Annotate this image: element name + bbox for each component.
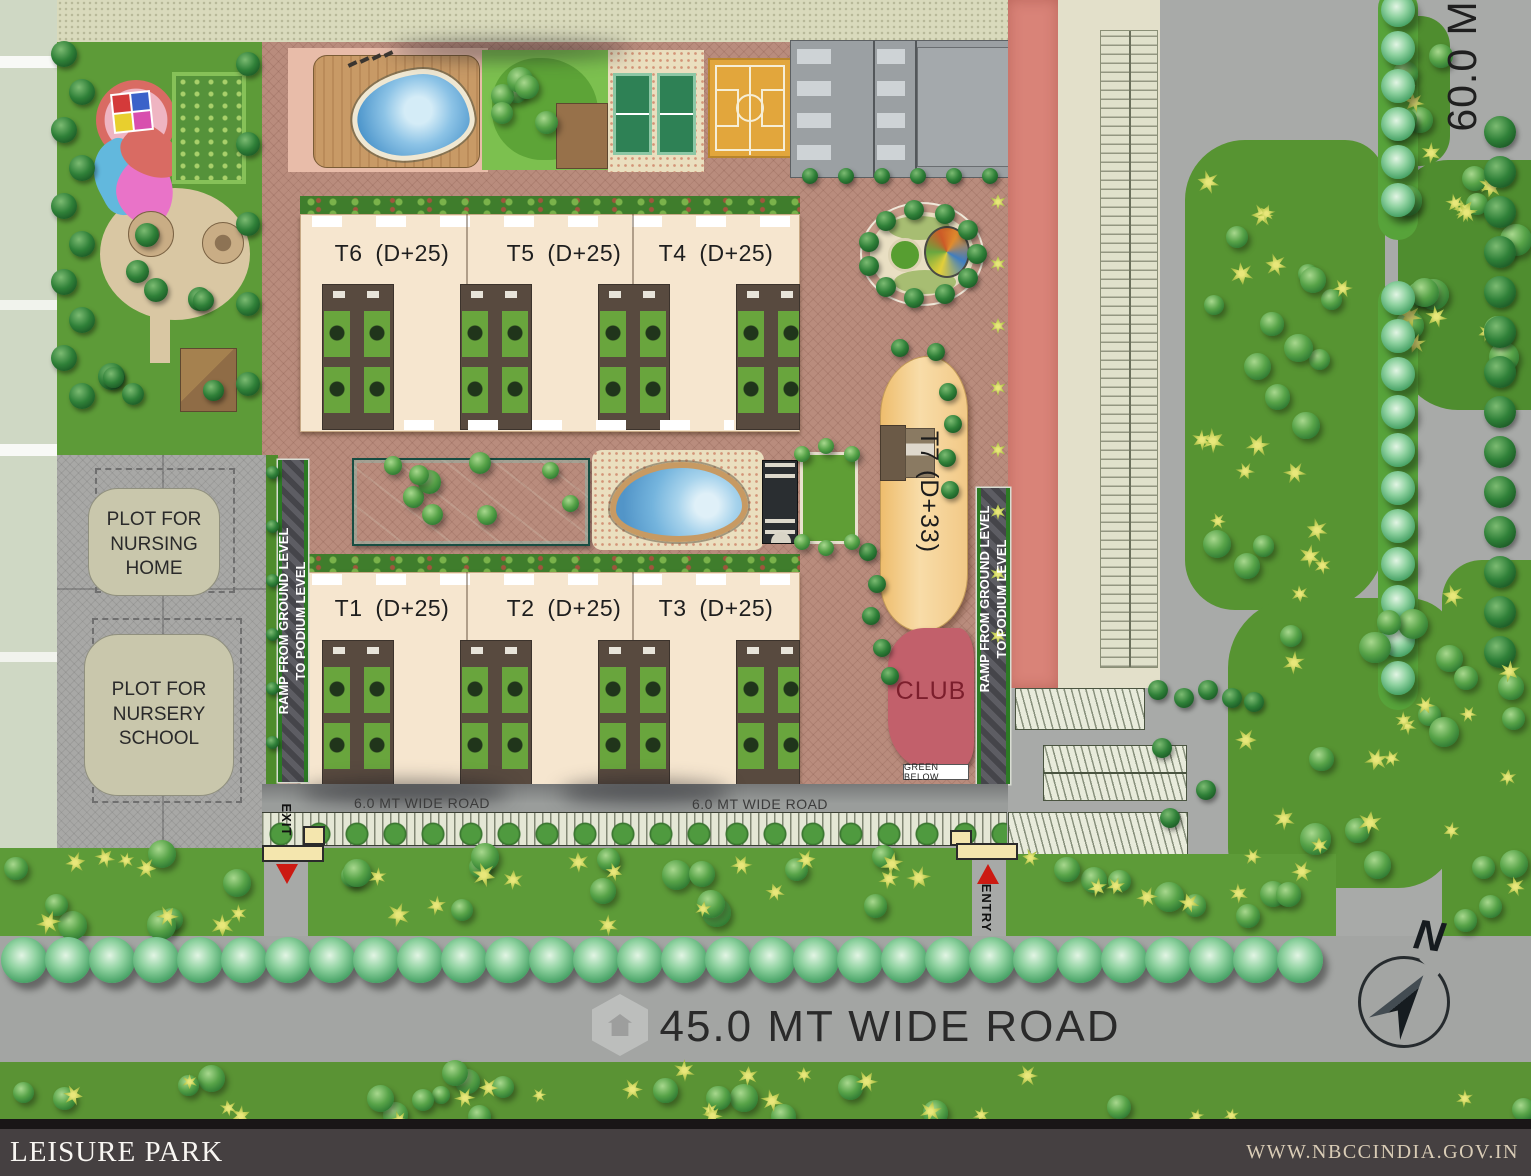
tree-icon bbox=[1381, 509, 1415, 543]
tree-icon bbox=[1145, 937, 1191, 983]
tree-icon bbox=[1381, 319, 1415, 353]
club-label: CLUB bbox=[888, 676, 974, 706]
tree-icon bbox=[1148, 680, 1168, 700]
tree-icon bbox=[1054, 857, 1080, 883]
tree-icon bbox=[367, 1085, 394, 1112]
tree-icon bbox=[859, 543, 877, 561]
path-line bbox=[0, 444, 57, 456]
tree-icon bbox=[1381, 661, 1415, 695]
tree-icon bbox=[1484, 156, 1516, 188]
tree-icon bbox=[653, 1078, 678, 1103]
project-title: LEISURE PARK bbox=[10, 1129, 223, 1176]
tree-icon bbox=[1381, 69, 1415, 103]
tennis-court bbox=[657, 73, 696, 155]
tree-icon bbox=[1364, 851, 1392, 879]
tree-icon bbox=[451, 899, 473, 921]
tree-icon bbox=[1309, 747, 1334, 772]
court-center-circle bbox=[736, 94, 764, 122]
tree-icon bbox=[69, 307, 95, 333]
utility-building bbox=[556, 103, 608, 169]
tree-icon bbox=[874, 168, 890, 184]
tree-icon bbox=[1359, 632, 1391, 664]
tree-icon bbox=[1484, 316, 1516, 348]
tree-icon bbox=[45, 937, 91, 983]
inner-road-label-east: 6.0 MT WIDE ROAD bbox=[690, 796, 830, 812]
entry-label: ENTRY bbox=[979, 882, 995, 934]
tree-icon bbox=[69, 79, 95, 105]
garden-plot bbox=[172, 72, 246, 184]
green-square-court bbox=[800, 452, 858, 544]
tree-icon bbox=[562, 495, 579, 512]
tower-courtyard bbox=[322, 284, 394, 430]
site-plan-canvas: T6 (D+25) T5 (D+25) T4 (D+25) T1 (D+25) … bbox=[0, 0, 1531, 1176]
tree-icon bbox=[1381, 31, 1415, 65]
tree-icon bbox=[1484, 196, 1516, 228]
main-road-label: 45.0 MT WIDE ROAD bbox=[620, 1002, 1160, 1052]
tree-icon bbox=[1429, 717, 1459, 747]
tree-icon bbox=[485, 937, 531, 983]
tree-icon bbox=[1300, 267, 1326, 293]
exit-gate-bar bbox=[262, 845, 324, 862]
ramp-east-label: RAMP FROM GROUND LEVEL TO PODIUM LEVEL bbox=[975, 439, 1013, 759]
tree-icon bbox=[617, 937, 663, 983]
tree-icon bbox=[868, 575, 886, 593]
balcony-notches bbox=[312, 216, 790, 227]
balcony-notches bbox=[312, 574, 790, 585]
tree-icon bbox=[1484, 596, 1516, 628]
tree-icon bbox=[1512, 1098, 1531, 1122]
tree-icon bbox=[69, 383, 95, 409]
ludo-square bbox=[114, 113, 133, 132]
tree-icon bbox=[409, 465, 429, 485]
tree-icon bbox=[221, 937, 267, 983]
tree-icon bbox=[1381, 357, 1415, 391]
tree-icon bbox=[1226, 226, 1248, 248]
ludo-square bbox=[133, 111, 152, 130]
path-line bbox=[0, 300, 57, 310]
tree-icon bbox=[1484, 276, 1516, 308]
tree-icon bbox=[935, 284, 955, 304]
tower-label-t4: T4 (D+25) bbox=[636, 240, 796, 267]
tree-icon bbox=[946, 168, 962, 184]
tree-icon bbox=[749, 937, 795, 983]
tower-label-t5: T5 (D+25) bbox=[484, 240, 644, 267]
tree-icon bbox=[1203, 530, 1231, 558]
tree-icon bbox=[1300, 823, 1332, 855]
tree-icon bbox=[1265, 384, 1291, 410]
tree-icon bbox=[1484, 436, 1516, 468]
tree-icon bbox=[982, 168, 998, 184]
tree-icon bbox=[126, 260, 149, 283]
tree-icon bbox=[198, 1065, 225, 1092]
tree-icon bbox=[442, 1060, 468, 1086]
tree-icon bbox=[69, 155, 95, 181]
tree-icon bbox=[223, 869, 251, 897]
entry-gate-bar bbox=[956, 843, 1018, 860]
southeast-green-area bbox=[1228, 598, 1458, 888]
tree-icon bbox=[1160, 808, 1180, 828]
tree-icon bbox=[1498, 674, 1523, 699]
court-key-right bbox=[761, 89, 785, 127]
tree-icon bbox=[1484, 516, 1516, 548]
tree-icon bbox=[876, 211, 896, 231]
tree-icon bbox=[793, 937, 839, 983]
ludo-court bbox=[110, 90, 154, 134]
east-road-label: 60.0 M bbox=[1438, 0, 1486, 196]
inner-road-label-west: 6.0 MT WIDE ROAD bbox=[352, 795, 492, 811]
tree-icon bbox=[1244, 692, 1264, 712]
compass bbox=[1358, 956, 1450, 1048]
path-line bbox=[0, 56, 57, 68]
tower-courtyard bbox=[322, 640, 394, 788]
tree-icon bbox=[1484, 236, 1516, 268]
website-url: WWW.NBCCINDIA.GOV.IN bbox=[1246, 1129, 1519, 1176]
pavilion bbox=[762, 460, 798, 544]
tree-icon bbox=[958, 268, 978, 288]
tree-icon bbox=[1484, 116, 1516, 148]
tree-icon bbox=[730, 1084, 758, 1112]
pavilion-stripes bbox=[765, 463, 795, 485]
tree-icon bbox=[45, 894, 68, 917]
tree-icon bbox=[969, 937, 1015, 983]
tree-icon bbox=[343, 859, 371, 887]
tree-icon bbox=[177, 937, 223, 983]
tree-icon bbox=[1260, 312, 1283, 335]
basketball-court bbox=[708, 58, 792, 158]
tree-icon bbox=[412, 1089, 434, 1111]
exit-label: EXIT bbox=[279, 798, 295, 842]
tree-icon bbox=[309, 937, 355, 983]
tower-label-t7: T7 (D+33) bbox=[912, 382, 946, 602]
tree-icon bbox=[51, 345, 77, 371]
ludo-square bbox=[112, 94, 131, 113]
tree-icon bbox=[844, 534, 860, 550]
path-line bbox=[0, 652, 57, 662]
green-below-box: GREEN BELOW bbox=[903, 764, 969, 780]
ramp-west-label: RAMP FROM GROUND LEVEL TO PODIUM LEVEL bbox=[274, 461, 312, 781]
tree-icon bbox=[864, 894, 887, 917]
tower-label-t6: T6 (D+25) bbox=[312, 240, 472, 267]
walkway-pergola bbox=[1100, 30, 1158, 668]
tree-icon bbox=[1484, 556, 1516, 588]
tree-icon bbox=[1381, 547, 1415, 581]
tree-icon bbox=[573, 937, 619, 983]
tree-icon bbox=[203, 380, 223, 400]
tree-icon bbox=[1057, 937, 1103, 983]
tree-icon bbox=[967, 244, 987, 264]
tree-icon bbox=[661, 937, 707, 983]
court-key-left bbox=[715, 89, 739, 127]
entry-arrow bbox=[977, 864, 999, 884]
tree-icon bbox=[1484, 636, 1516, 668]
tree-icon bbox=[1472, 856, 1495, 879]
boundary-pergola bbox=[262, 812, 1007, 846]
tree-icon bbox=[1222, 688, 1242, 708]
tree-icon bbox=[1381, 183, 1415, 217]
tree-icon bbox=[944, 415, 962, 433]
parking-row bbox=[1015, 688, 1145, 730]
park-path bbox=[150, 295, 170, 363]
ludo-square bbox=[131, 92, 150, 111]
tree-icon bbox=[89, 937, 135, 983]
tower-courtyard bbox=[736, 640, 800, 788]
exit-arrow bbox=[276, 864, 298, 884]
tree-icon bbox=[441, 937, 487, 983]
tree-icon bbox=[4, 857, 28, 881]
tree-icon bbox=[794, 534, 810, 550]
tree-icon bbox=[1013, 937, 1059, 983]
tree-icon bbox=[927, 343, 945, 361]
tennis-court bbox=[613, 73, 652, 155]
tree-icon bbox=[397, 937, 443, 983]
tree-icon bbox=[859, 232, 879, 252]
tree-icon bbox=[1484, 476, 1516, 508]
tower-label-t1: T1 (D+25) bbox=[312, 595, 472, 622]
tree-icon bbox=[818, 438, 834, 454]
tower-courtyard bbox=[460, 640, 532, 788]
green-below-label: GREEN BELOW bbox=[904, 762, 968, 782]
tree-icon bbox=[1484, 356, 1516, 388]
tree-icon bbox=[133, 937, 179, 983]
tree-icon bbox=[1198, 680, 1218, 700]
tree-icon bbox=[471, 843, 499, 871]
tree-icon bbox=[1276, 882, 1301, 907]
tree-icon bbox=[794, 446, 810, 462]
tree-icon bbox=[904, 288, 924, 308]
tree-icon bbox=[1381, 395, 1415, 429]
t7-core bbox=[880, 425, 906, 481]
tree-icon bbox=[1277, 937, 1323, 983]
exit-gate-arm bbox=[303, 826, 325, 845]
tree-icon bbox=[353, 937, 399, 983]
tree-icon bbox=[910, 168, 926, 184]
tree-icon bbox=[236, 132, 260, 156]
tree-icon bbox=[862, 607, 880, 625]
tree-icon bbox=[236, 52, 260, 76]
tree-icon bbox=[51, 193, 77, 219]
tree-icon bbox=[1204, 295, 1224, 315]
tree-icon bbox=[1321, 289, 1342, 310]
footer: LEISURE PARK WWW.NBCCINDIA.GOV.IN bbox=[0, 1129, 1531, 1176]
tree-icon bbox=[51, 117, 77, 143]
tower-courtyard bbox=[736, 284, 800, 430]
nursery-school-label: PLOT FOR NURSERY SCHOOL bbox=[96, 678, 222, 752]
service-buildings bbox=[790, 40, 1028, 178]
tree-icon bbox=[1284, 334, 1312, 362]
tree-icon bbox=[1154, 882, 1184, 912]
tree-icon bbox=[69, 231, 95, 257]
tree-icon bbox=[1454, 909, 1477, 932]
tree-icon bbox=[705, 937, 751, 983]
tree-icon bbox=[1174, 688, 1194, 708]
tree-icon bbox=[51, 41, 77, 67]
building-shadow bbox=[390, 40, 630, 60]
footer-divider bbox=[0, 1119, 1531, 1129]
tree-icon bbox=[469, 452, 491, 474]
tree-icon bbox=[236, 292, 260, 316]
tree-icon bbox=[236, 212, 260, 236]
tree-icon bbox=[236, 372, 260, 396]
roof-vents bbox=[797, 49, 831, 174]
tower-courtyard bbox=[598, 640, 670, 788]
tree-icon bbox=[1101, 937, 1147, 983]
tree-icon bbox=[51, 269, 77, 295]
tree-icon bbox=[535, 111, 558, 134]
tree-icon bbox=[1196, 780, 1216, 800]
tree-icon bbox=[697, 890, 725, 918]
tower-courtyard bbox=[598, 284, 670, 430]
tree-icon bbox=[1233, 937, 1279, 983]
roof-vents bbox=[877, 49, 905, 174]
tree-icon bbox=[1479, 895, 1502, 918]
tree-icon bbox=[265, 937, 311, 983]
tree-icon bbox=[529, 937, 575, 983]
tree-icon bbox=[58, 911, 87, 940]
tree-icon bbox=[103, 367, 124, 388]
tree-icon bbox=[1410, 278, 1439, 307]
tower-hedge bbox=[300, 196, 800, 214]
tree-icon bbox=[1381, 471, 1415, 505]
tree-icon bbox=[881, 937, 927, 983]
adjacent-plot-west bbox=[0, 0, 57, 868]
tower-label-t3: T3 (D+25) bbox=[636, 595, 796, 622]
tree-icon bbox=[515, 75, 539, 99]
tree-icon bbox=[1381, 107, 1415, 141]
tree-icon bbox=[1484, 396, 1516, 428]
tree-icon bbox=[491, 102, 513, 124]
tree-icon bbox=[818, 540, 834, 556]
tree-icon bbox=[838, 168, 854, 184]
tree-icon bbox=[1398, 609, 1428, 639]
tree-icon bbox=[844, 446, 860, 462]
tree-icon bbox=[1381, 145, 1415, 179]
tree-icon bbox=[1381, 433, 1415, 467]
parking-row-divider bbox=[1043, 772, 1187, 774]
tree-icon bbox=[1292, 412, 1320, 440]
tree-icon bbox=[925, 937, 971, 983]
tree-icon bbox=[1, 937, 47, 983]
garden-lawn-circle bbox=[888, 238, 922, 272]
tower-label-t2: T2 (D+25) bbox=[484, 595, 644, 622]
balcony-notches bbox=[404, 420, 734, 430]
tree-icon bbox=[891, 339, 909, 357]
podium-edge-road bbox=[1008, 0, 1058, 688]
tower-courtyard bbox=[460, 284, 532, 430]
tree-icon bbox=[873, 639, 891, 657]
building-wall bbox=[873, 41, 875, 177]
tower-hedge bbox=[300, 554, 800, 572]
tree-icon bbox=[1189, 937, 1235, 983]
tree-icon bbox=[1381, 281, 1415, 315]
tree-icon bbox=[837, 937, 883, 983]
tree-icon bbox=[590, 878, 616, 904]
tree-icon bbox=[144, 278, 168, 302]
tree-icon bbox=[1152, 738, 1172, 758]
tree-icon bbox=[802, 168, 818, 184]
tree-icon bbox=[935, 204, 955, 224]
nursing-home-label: PLOT FOR NURSING HOME bbox=[92, 508, 216, 582]
